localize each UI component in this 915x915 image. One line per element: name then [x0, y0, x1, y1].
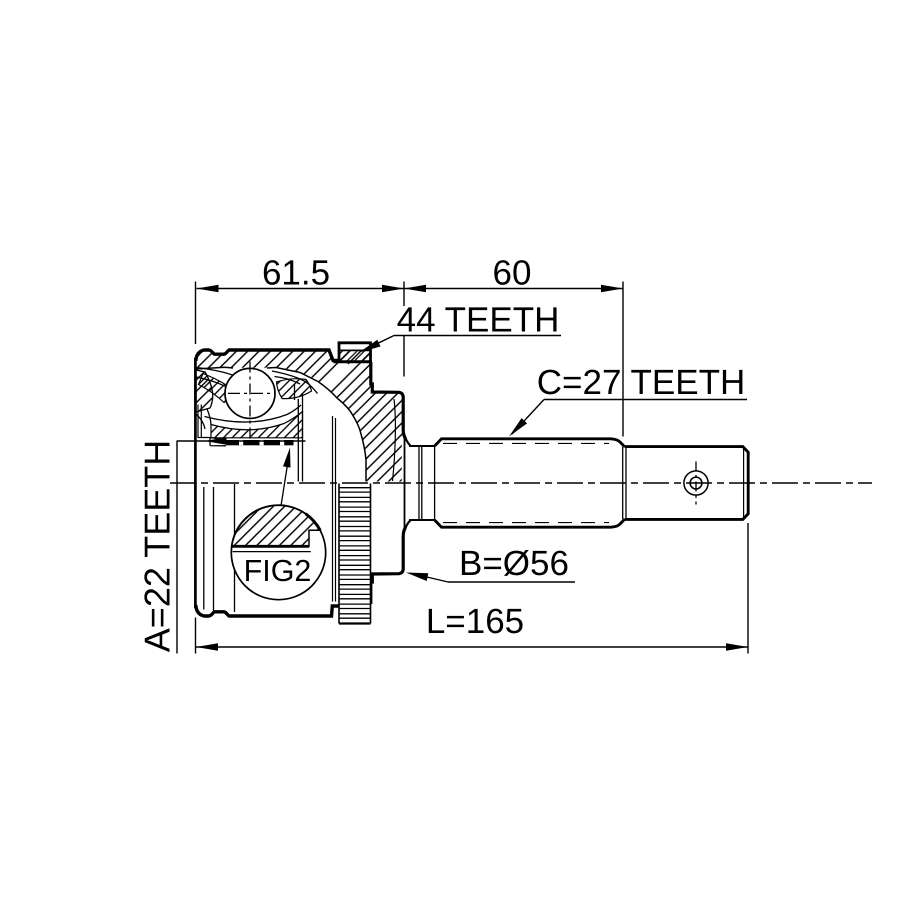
svg-text:60: 60: [493, 254, 532, 293]
svg-text:C=27 TEETH: C=27 TEETH: [537, 363, 745, 402]
svg-text:A=22 TEETH: A=22 TEETH: [137, 440, 178, 652]
svg-text:44 TEETH: 44 TEETH: [397, 301, 560, 340]
svg-text:L=165: L=165: [426, 602, 524, 641]
svg-text:B=Ø56: B=Ø56: [459, 544, 569, 583]
svg-text:61.5: 61.5: [262, 254, 330, 293]
svg-text:FIG2: FIG2: [244, 554, 312, 588]
